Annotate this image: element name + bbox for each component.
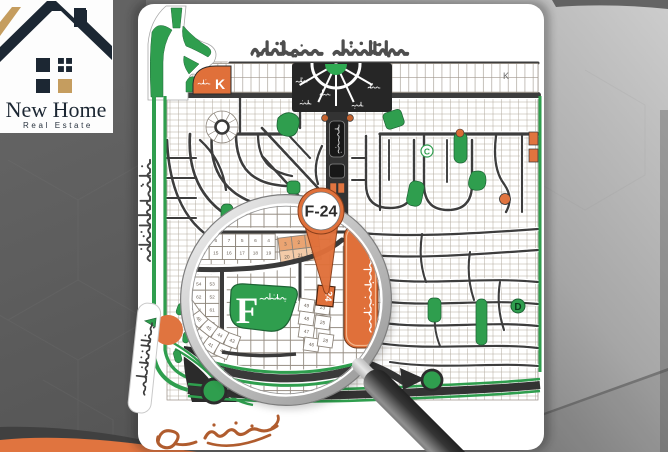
svg-text:6: 6 [254,238,257,244]
svg-text:F-24: F-24 [305,204,338,221]
svg-text:Real Estate: Real Estate [23,121,93,130]
svg-text:New Home: New Home [6,97,107,122]
svg-text:62: 62 [196,295,202,301]
svg-text:K: K [503,71,509,81]
svg-text:4: 4 [267,238,270,244]
svg-text:5: 5 [241,238,244,244]
svg-text:53: 53 [210,281,216,287]
svg-text:20: 20 [284,254,290,261]
svg-text:K: K [215,76,225,92]
svg-text:52: 52 [210,295,216,301]
svg-text:18: 18 [253,251,259,257]
svg-text:19: 19 [266,251,272,257]
svg-text:61: 61 [210,308,216,314]
svg-text:17: 17 [240,251,246,257]
svg-text:C: C [424,146,430,156]
svg-text:16: 16 [226,251,232,257]
svg-text:D: D [514,302,521,313]
svg-text:54: 54 [196,281,202,287]
svg-text:7: 7 [228,238,231,244]
svg-text:F: F [236,291,259,332]
svg-text:15: 15 [213,251,219,257]
